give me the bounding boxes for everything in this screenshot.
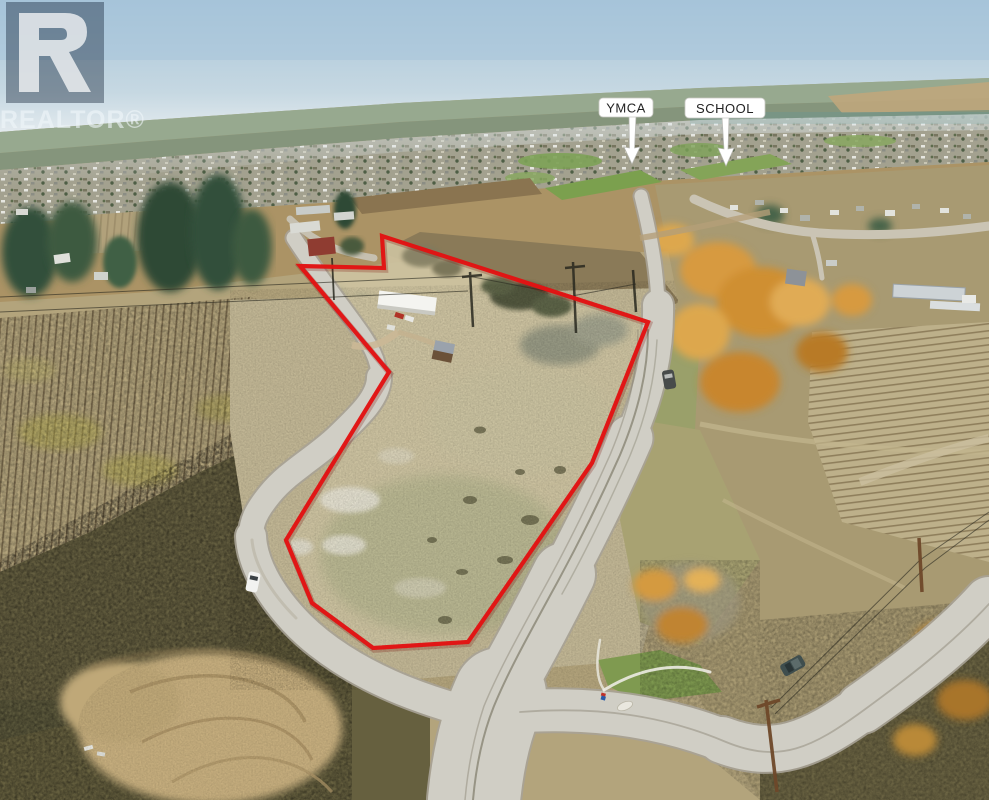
- shed: [432, 340, 456, 363]
- gray-barn: [785, 269, 807, 287]
- school-label-text: SCHOOL: [696, 101, 754, 116]
- aerial-scene: YMCA SCHOOL: [0, 0, 989, 800]
- red-roof-house: [307, 237, 336, 257]
- ymca-label-text: YMCA: [606, 101, 646, 116]
- truck: [962, 295, 976, 303]
- aerial-listing-photo: YMCA SCHOOL REALTOR®: [0, 0, 989, 800]
